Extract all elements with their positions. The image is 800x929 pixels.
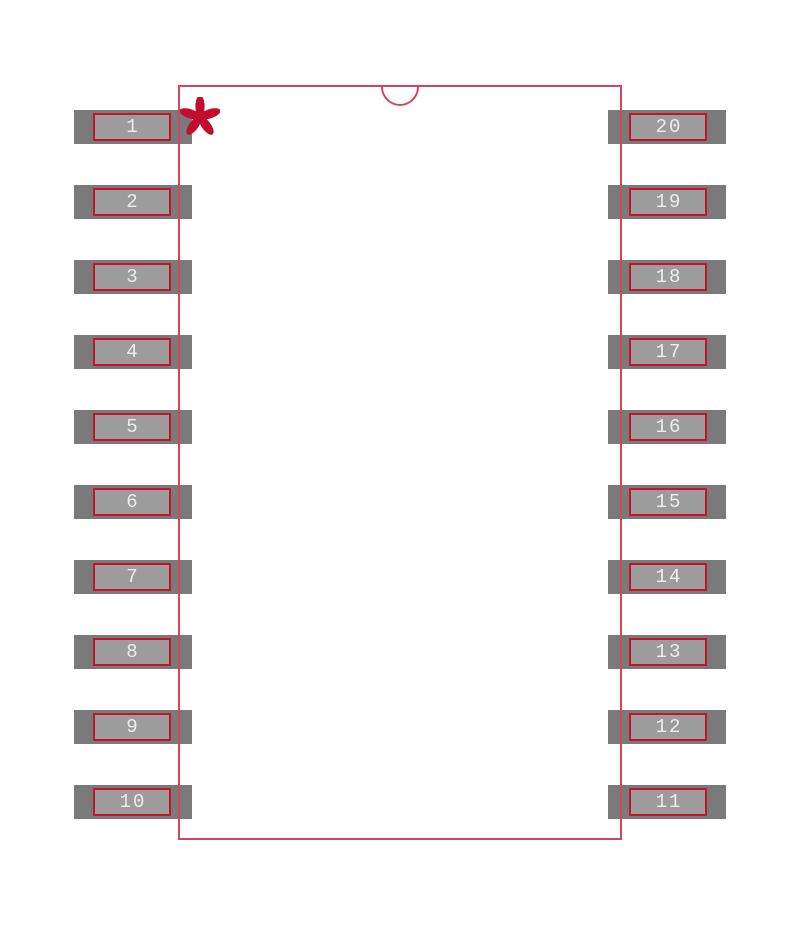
- pad-3-number: 3: [124, 268, 139, 287]
- pad-2-number: 2: [124, 193, 139, 212]
- pad-14: 14: [608, 560, 726, 594]
- component-body-outline: [178, 85, 622, 840]
- pad-11-courtyard-outline: 11: [629, 788, 707, 816]
- pad-1: 1: [74, 110, 192, 144]
- pad-19-courtyard-outline: 19: [629, 188, 707, 216]
- pad-12-number: 12: [654, 718, 683, 737]
- pad-12: 12: [608, 710, 726, 744]
- pad-1-number: 1: [124, 118, 139, 137]
- pad-18: 18: [608, 260, 726, 294]
- pad-13: 13: [608, 635, 726, 669]
- pad-13-courtyard-outline: 13: [629, 638, 707, 666]
- pad-15: 15: [608, 485, 726, 519]
- pad-19: 19: [608, 185, 726, 219]
- pad-5-courtyard-outline: 5: [93, 413, 171, 441]
- pad-4-courtyard-outline: 4: [93, 338, 171, 366]
- pad-14-courtyard-outline: 14: [629, 563, 707, 591]
- pad-9: 9: [74, 710, 192, 744]
- pad-10-courtyard-outline: 10: [93, 788, 171, 816]
- pad-11: 11: [608, 785, 726, 819]
- footprint-canvas: 1234567891020191817161514131211: [0, 0, 800, 929]
- pad-17-number: 17: [654, 343, 683, 362]
- pad-7: 7: [74, 560, 192, 594]
- pad-4-number: 4: [124, 343, 139, 362]
- pad-6: 6: [74, 485, 192, 519]
- pad-12-courtyard-outline: 12: [629, 713, 707, 741]
- pad-15-courtyard-outline: 15: [629, 488, 707, 516]
- pad-14-number: 14: [654, 568, 683, 587]
- pad-6-courtyard-outline: 6: [93, 488, 171, 516]
- pad-10-number: 10: [118, 793, 147, 812]
- pad-5-number: 5: [124, 418, 139, 437]
- pad-20: 20: [608, 110, 726, 144]
- pad-18-courtyard-outline: 18: [629, 263, 707, 291]
- pad-8-number: 8: [124, 643, 139, 662]
- pad-6-number: 6: [124, 493, 139, 512]
- orientation-notch-icon: [381, 87, 419, 106]
- pad-8-courtyard-outline: 8: [93, 638, 171, 666]
- pad-9-number: 9: [124, 718, 139, 737]
- pad-11-number: 11: [654, 793, 683, 812]
- pad-1-courtyard-outline: 1: [93, 113, 171, 141]
- pad-19-number: 19: [654, 193, 683, 212]
- pad-2-courtyard-outline: 2: [93, 188, 171, 216]
- pad-5: 5: [74, 410, 192, 444]
- pad-20-courtyard-outline: 20: [629, 113, 707, 141]
- pad-18-number: 18: [654, 268, 683, 287]
- pad-9-courtyard-outline: 9: [93, 713, 171, 741]
- pad-4: 4: [74, 335, 192, 369]
- pad-17: 17: [608, 335, 726, 369]
- pad-7-courtyard-outline: 7: [93, 563, 171, 591]
- pad-15-number: 15: [654, 493, 683, 512]
- pad-20-number: 20: [654, 118, 683, 137]
- pad-16-courtyard-outline: 16: [629, 413, 707, 441]
- pad-8: 8: [74, 635, 192, 669]
- pad-16-number: 16: [654, 418, 683, 437]
- pad-2: 2: [74, 185, 192, 219]
- pad-13-number: 13: [654, 643, 683, 662]
- pad-10: 10: [74, 785, 192, 819]
- pad-16: 16: [608, 410, 726, 444]
- pad-7-number: 7: [124, 568, 139, 587]
- pad-3: 3: [74, 260, 192, 294]
- pad-3-courtyard-outline: 3: [93, 263, 171, 291]
- pad-17-courtyard-outline: 17: [629, 338, 707, 366]
